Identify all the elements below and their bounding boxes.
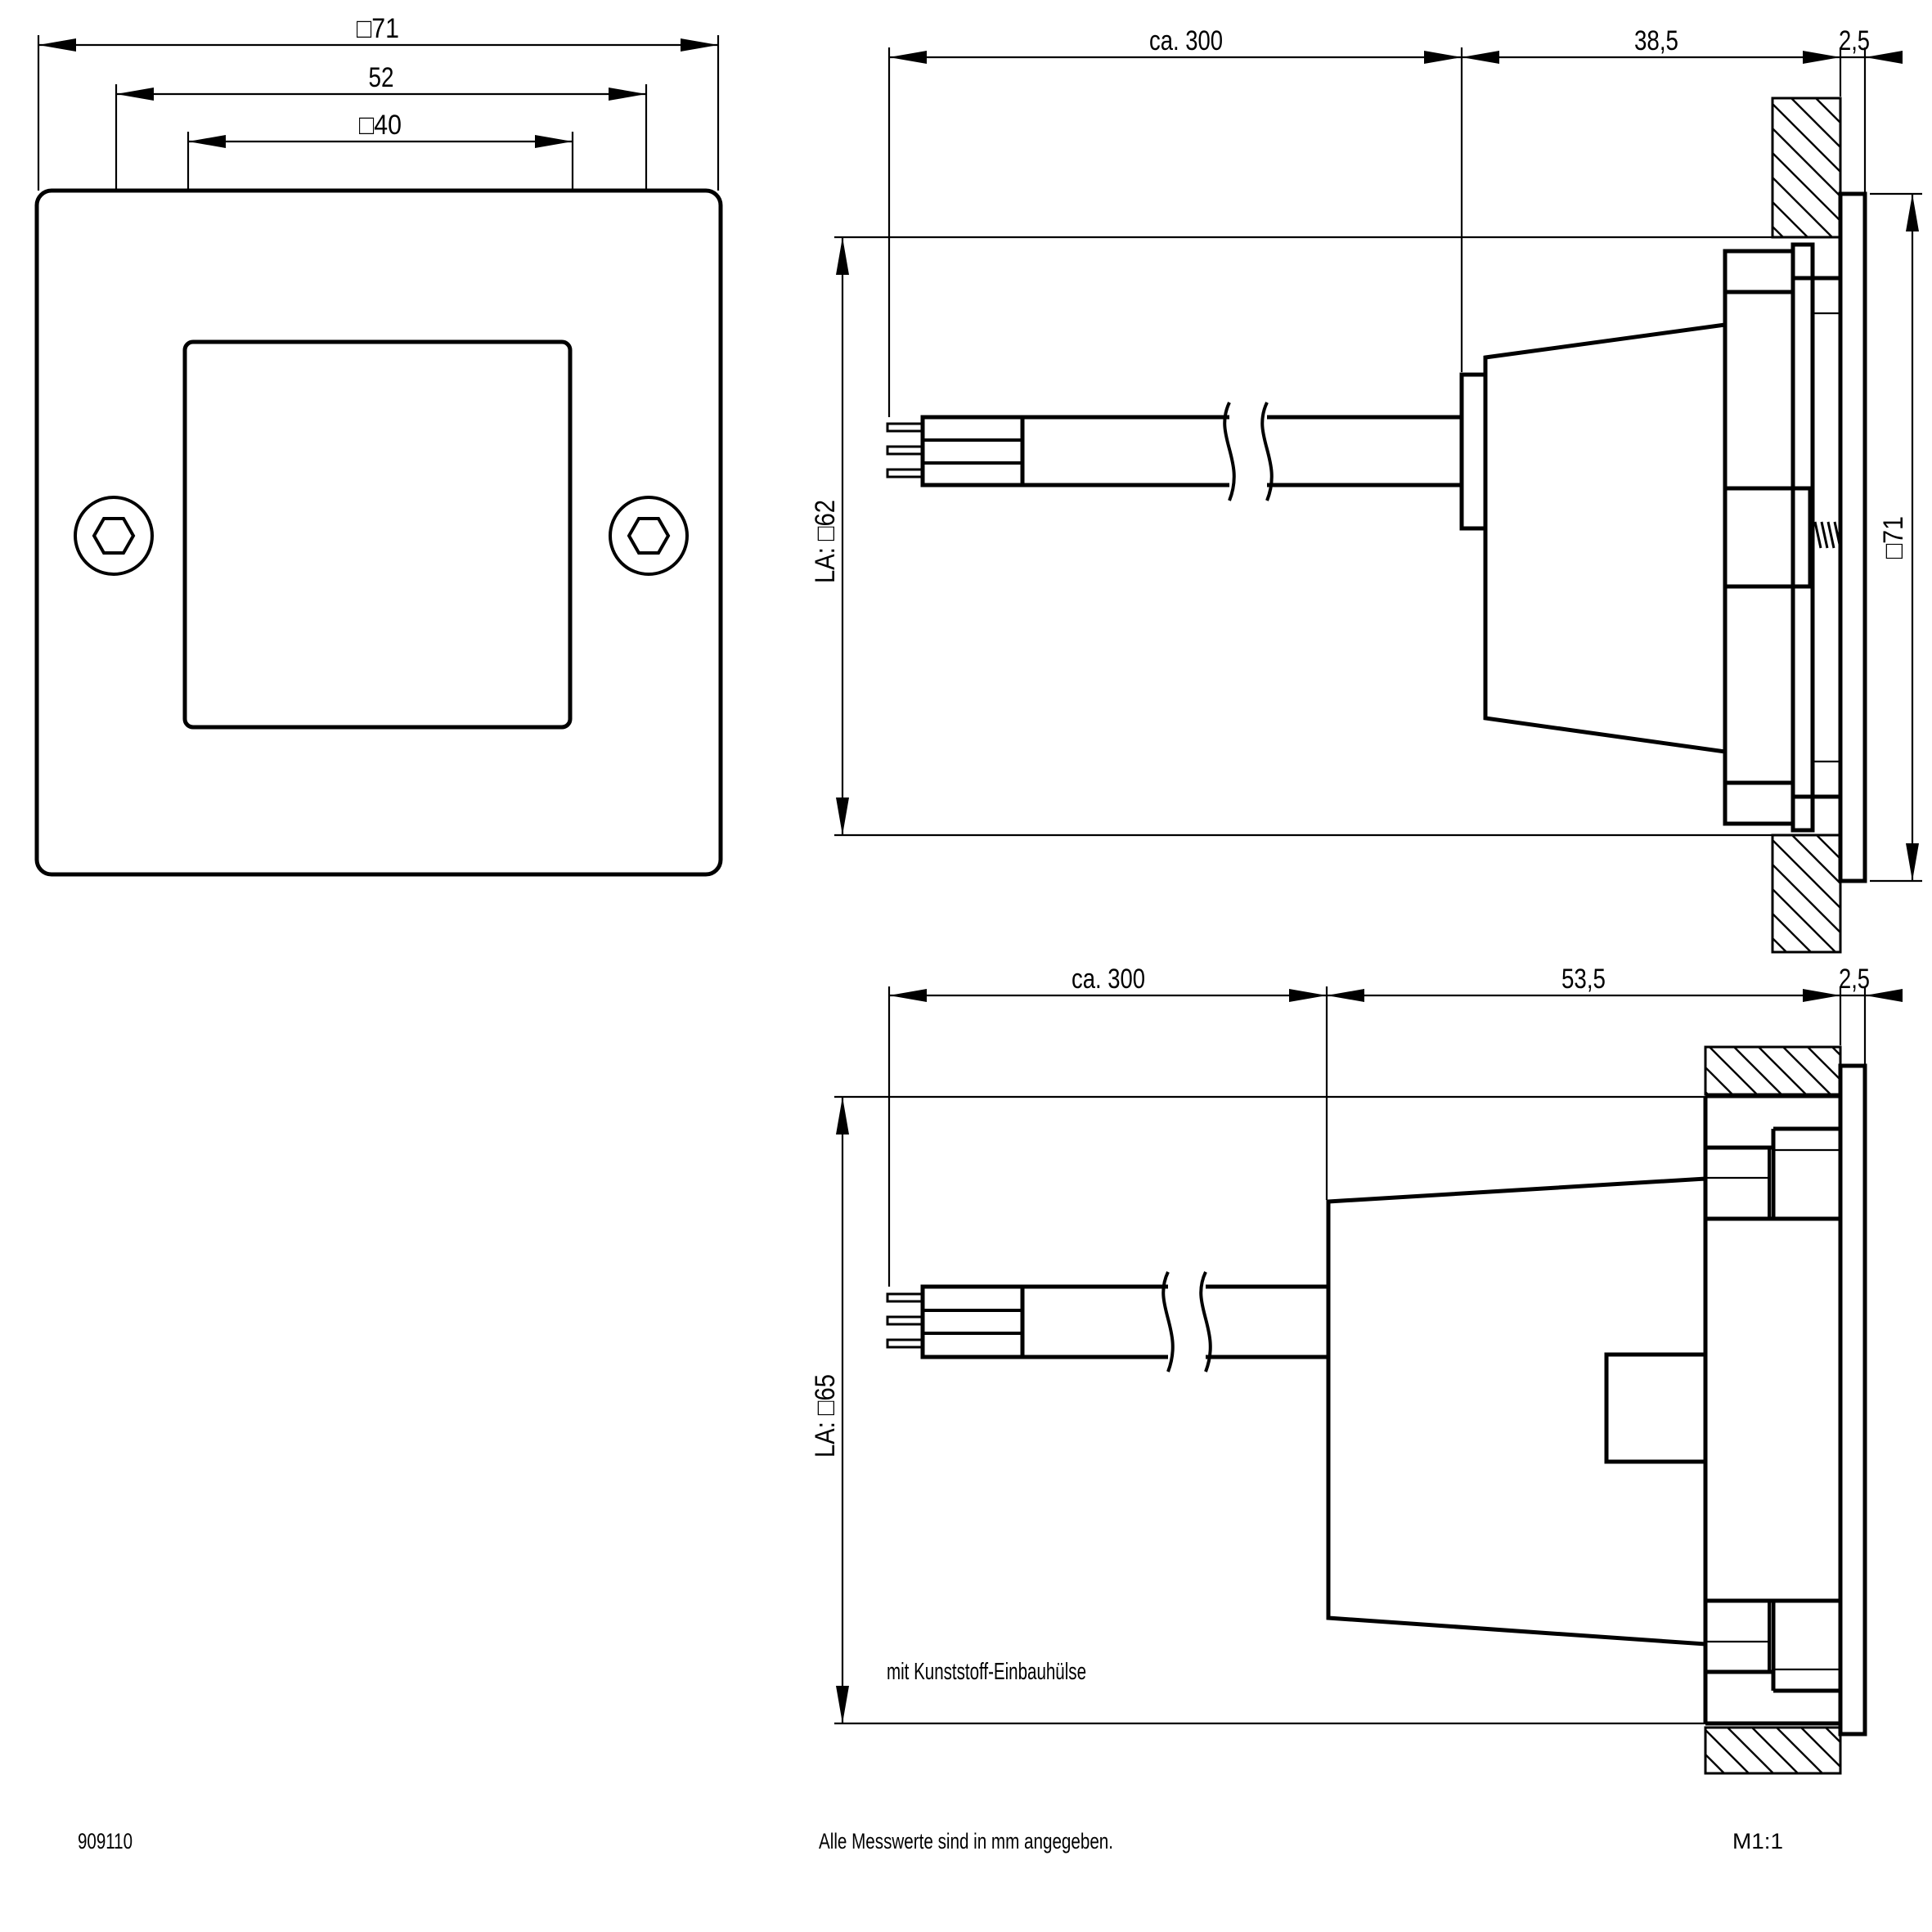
dim-label-plate-thickness: 2,5 <box>1839 25 1870 56</box>
wire-pin <box>887 1294 923 1301</box>
arrowhead-icon <box>1803 51 1840 64</box>
hex-socket-right-icon <box>629 519 668 553</box>
installation-sleeve <box>1705 1096 1840 1723</box>
dim-label-plate-thickness: 2,5 <box>1839 964 1870 995</box>
arrowhead-icon <box>1865 51 1903 64</box>
cable <box>1022 402 1462 501</box>
units-note: Alle Messwerte sind in mm angegeben. <box>819 1829 1113 1853</box>
dim-label-depth: 38,5 <box>1634 25 1678 56</box>
dim-front-window: □40 <box>188 110 573 191</box>
technical-drawing-sheet: □71 52 □40 <box>0 0 1932 1932</box>
hex-screw-left <box>75 497 152 574</box>
arrowhead-icon <box>836 1097 849 1134</box>
arrowhead-icon <box>889 51 927 64</box>
dim-cutout-62: LA: □62 <box>810 237 849 835</box>
cable-wires <box>887 417 1022 485</box>
wire-block <box>923 417 1022 485</box>
screw-boss <box>1725 488 1810 586</box>
fixing-screw-thread-icon <box>1815 522 1840 548</box>
arrowhead-icon <box>38 38 76 52</box>
wall-section-top <box>1705 1047 1840 1094</box>
housing-cone <box>1485 325 1725 752</box>
arrowhead-icon <box>1906 194 1919 231</box>
wall-section-bottom <box>1705 1728 1840 1773</box>
arrowhead-icon <box>836 237 849 275</box>
article-number: 909110 <box>78 1829 133 1853</box>
dim-top-chain: ca. 300 38,5 2,5 <box>889 25 1903 417</box>
sleeve-note: mit Kunststoff-Einbauhülse <box>887 1659 1086 1685</box>
wire-pin <box>887 1340 923 1347</box>
cover-plate <box>1840 1066 1865 1734</box>
arrowhead-icon <box>1803 989 1840 1002</box>
arrowhead-icon <box>1289 989 1327 1002</box>
housing-cone <box>1328 1179 1705 1644</box>
arrowhead-icon <box>535 135 573 148</box>
wire-block <box>923 1287 1022 1357</box>
dim-front-outer-width: □71 <box>38 13 718 191</box>
arrowhead-icon <box>116 88 154 101</box>
hex-screw-right <box>610 497 687 574</box>
wall-section-top <box>1772 98 1840 237</box>
front-view: □71 52 □40 <box>37 13 721 874</box>
cover-plate <box>1840 194 1865 881</box>
clip-top <box>1793 245 1813 278</box>
footer: 909110 Alle Messwerte sind in mm angegeb… <box>78 1829 1783 1853</box>
dim-plate-height-71: □71 <box>1870 194 1922 881</box>
arrowhead-icon <box>681 38 718 52</box>
dim-label-front-outer: □71 <box>357 13 399 44</box>
arrowhead-icon <box>836 798 849 835</box>
hex-socket-left-icon <box>94 519 133 553</box>
drawing-scale: M1:1 <box>1732 1829 1783 1853</box>
mounting-ring <box>1725 245 1840 830</box>
dim-label-plate-height: □71 <box>1878 516 1909 559</box>
arrowhead-icon <box>188 135 226 148</box>
arrowhead-icon <box>889 989 927 1002</box>
front-plate <box>37 191 721 874</box>
arrowhead-icon <box>1424 51 1462 64</box>
dim-label-cable-length: ca. 300 <box>1149 25 1223 56</box>
wall-section-bottom <box>1772 835 1840 952</box>
lens-window <box>185 342 570 727</box>
side-view-sleeve: ca. 300 53,5 2,5 LA: □65 mit Kunststoff-… <box>810 964 1903 1773</box>
cable-wires <box>887 1287 1022 1357</box>
arrowhead-icon <box>1462 51 1499 64</box>
wire-pin <box>887 447 923 454</box>
wire-pin <box>887 1317 923 1324</box>
dim-label-front-window: □40 <box>359 110 402 141</box>
arrowhead-icon <box>1906 843 1919 881</box>
cable-gland <box>1462 375 1485 528</box>
clip-bottom <box>1793 797 1813 830</box>
wire-pin <box>887 424 923 431</box>
arrowhead-icon <box>1327 989 1364 1002</box>
cable <box>1022 1272 1328 1372</box>
side-view-recessed: ca. 300 38,5 2,5 LA: □62 □71 <box>810 25 1922 952</box>
dim-label-front-screws: 52 <box>369 62 394 93</box>
dim-label-cutout-62: LA: □62 <box>810 500 841 583</box>
dim-label-cutout-65: LA: □65 <box>810 1374 841 1458</box>
dim-label-cable-length: ca. 300 <box>1072 964 1145 995</box>
dim-label-depth: 53,5 <box>1561 964 1606 995</box>
arrowhead-icon <box>609 88 646 101</box>
wire-pin <box>887 470 923 477</box>
arrowhead-icon <box>836 1686 849 1723</box>
arrowhead-icon <box>1865 989 1903 1002</box>
